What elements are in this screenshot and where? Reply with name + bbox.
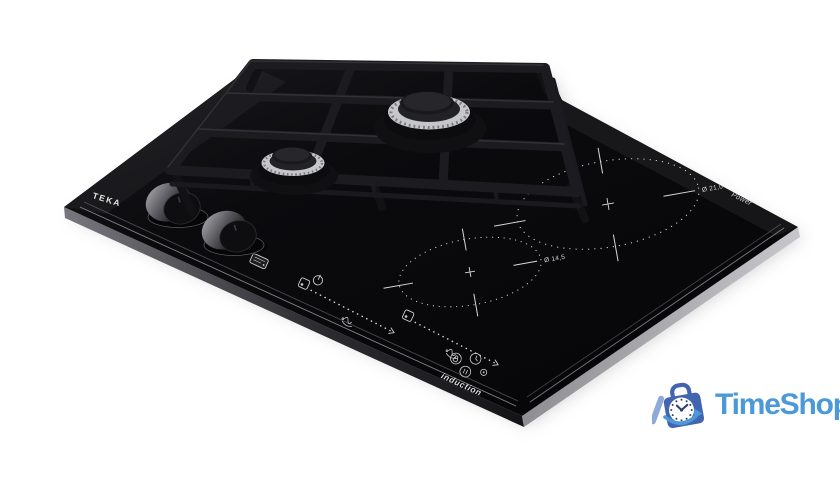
product-page: TEKA Power Ø 21,0 — [0, 0, 840, 490]
timeshop-wordmark: TimeShop — [715, 380, 840, 430]
stripe-accent — [652, 395, 665, 425]
timeshop-bag-clock-icon — [652, 380, 710, 430]
timeshop-logo[interactable]: TimeShop — [652, 380, 840, 430]
